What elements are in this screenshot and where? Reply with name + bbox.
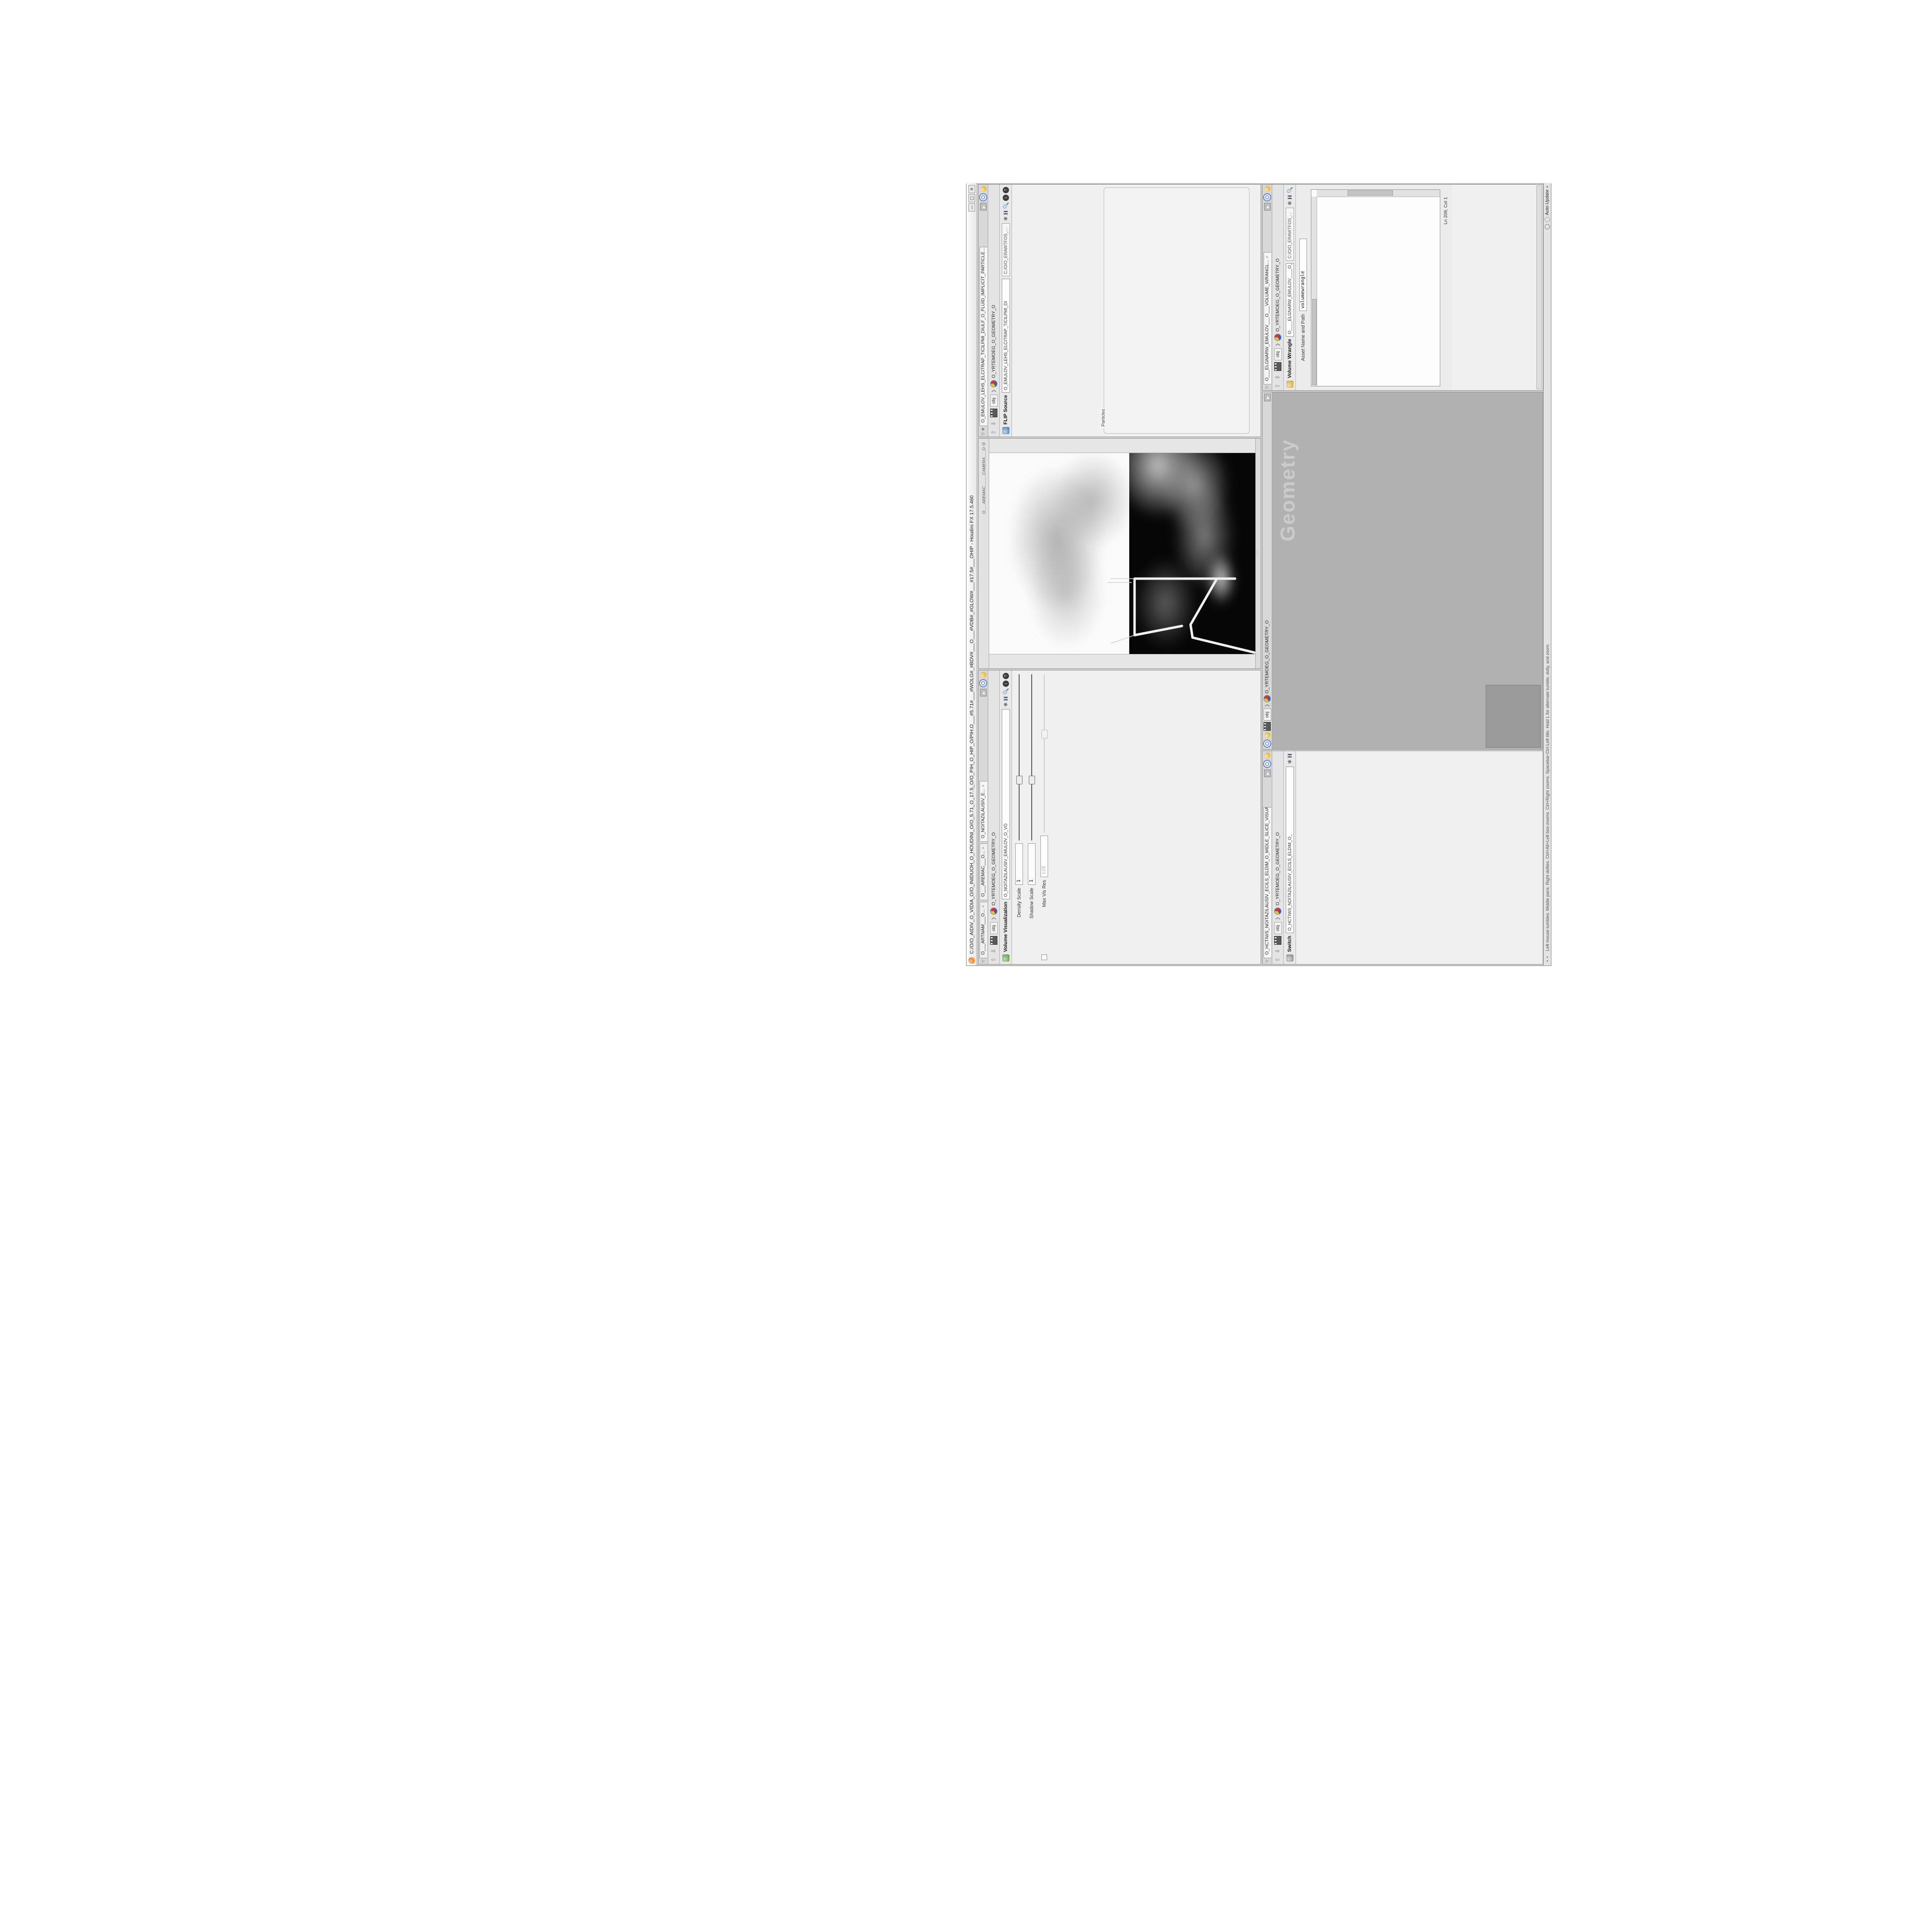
breadcrumb-root[interactable]: obj bbox=[990, 922, 998, 934]
node-name-field[interactable]: O_HCTIWS_NOITAZILAUSIV_ECILS_ELDIM_O_ bbox=[1286, 767, 1294, 934]
breadcrumb-sep-icon: ❯ bbox=[991, 917, 996, 921]
node-name-field[interactable]: O____ELGNARW_EMULOV____O____VOI bbox=[1286, 263, 1294, 336]
param-value-field[interactable]: 1 bbox=[1028, 843, 1036, 885]
breadcrumb-root[interactable]: obj bbox=[1274, 922, 1282, 934]
viewport-right-toolbar bbox=[989, 439, 1256, 453]
flip-source-pane: ▽ ✥ O_EMULOV_LEHS_ELCITRAP_TICILPMI_DIUL… bbox=[978, 184, 1261, 437]
maximize-button[interactable]: ▢ bbox=[968, 194, 975, 202]
nav-up-icon[interactable]: ⇧ bbox=[990, 428, 997, 435]
volume-wrangle-pane: ▽ O___ELGNARW_EMULOV___O___VOLUME_WRANGL… bbox=[1262, 184, 1543, 391]
cursor-position-status: Ln 209, Col 1 bbox=[1443, 197, 1449, 225]
volume-visualization-pane: ▽ O___ARTNAM___O...✕ O___AREMAC___O...✕ … bbox=[978, 670, 1261, 965]
houdini-h-icon: H bbox=[1286, 195, 1293, 199]
particles-group-label: Particles bbox=[1101, 407, 1106, 428]
volume-visualization-icon bbox=[1002, 954, 1009, 962]
info-icon[interactable]: i bbox=[1003, 681, 1009, 687]
param-label: Shadow Scale bbox=[1029, 888, 1035, 960]
colorwheel-icon bbox=[1274, 908, 1281, 915]
volvis-parameters: Density Scale1Shadow Scale1Max Vis Res12… bbox=[1013, 670, 1261, 964]
colorwheel-icon bbox=[990, 908, 997, 915]
gear-icon[interactable]: ✱ bbox=[1003, 702, 1009, 707]
gear-icon[interactable]: ✱ bbox=[1003, 216, 1009, 221]
flip-parameters: Particles bbox=[1013, 185, 1261, 437]
nav-down-icon[interactable]: ⬇ bbox=[990, 947, 997, 953]
houdini-desktop: C:/O/O_AIDIV_O_VIDIA_O/O_INIDUOH_O_HOUDI… bbox=[966, 184, 1551, 966]
window-titlebar: C:/O/O_AIDIV_O_VIDIA_O/O_INIDUOH_O_HOUDI… bbox=[966, 183, 977, 966]
node-type-label: Switch bbox=[1287, 936, 1293, 952]
nav-down-icon[interactable]: ⬇ bbox=[990, 419, 997, 426]
switch-tabstrip: ▽ O_HCTIWS_NOITAZILAUSIV_ECILS_ELDIM_O_M… bbox=[1263, 751, 1272, 964]
breadcrumb-root[interactable]: obj bbox=[1274, 348, 1282, 360]
nav-down-icon[interactable]: ⬇ bbox=[1274, 373, 1281, 380]
pane-split-icon[interactable]: ✥ bbox=[981, 427, 985, 431]
minimize-button[interactable]: — bbox=[968, 203, 975, 212]
param-label: Density Scale bbox=[1017, 888, 1022, 960]
node-type-label: Volume Wrangle bbox=[1287, 339, 1293, 378]
help-icon[interactable]: ? bbox=[1003, 673, 1009, 679]
status-bar: ▲▲ Left mouse tumbles. Middle pans. Righ… bbox=[1543, 183, 1551, 966]
switch-breadcrumb: ⇧ ⬇ obj ❯ O_YRTEMOEG_O_GEOMETRY_O bbox=[1272, 751, 1284, 964]
info-icon[interactable]: i bbox=[1003, 195, 1009, 201]
pane-menu-icon[interactable]: ▽ bbox=[1265, 386, 1269, 389]
pane-pin-icon[interactable] bbox=[980, 672, 986, 678]
tab-visualization[interactable]: O_NOITAZILAUSIV_E...✕ bbox=[980, 781, 987, 842]
breadcrumb-node[interactable]: O_YRTEMOEG_O_GEOMETRY_O bbox=[991, 305, 996, 378]
pane-link-icon[interactable] bbox=[979, 193, 987, 201]
volume-wrangle-icon bbox=[1286, 381, 1293, 388]
switch-icon bbox=[1286, 954, 1293, 962]
wrangle-breadcrumb: ⇧ ⬇ obj ❯ O_YRTEMOEG_O_GEOMETRY_O bbox=[1272, 185, 1284, 390]
pane-link-icon[interactable] bbox=[1263, 739, 1271, 748]
scene-viewport-pane: O___AREMAC_____CAMERA___O @ bbox=[978, 438, 1261, 669]
pane-menu-icon[interactable]: ▽ bbox=[1265, 960, 1269, 963]
search-icon[interactable]: 🔍 bbox=[1287, 187, 1293, 194]
asset-path-field[interactable]: C:/O/O_ERAWTFOS_... bbox=[1286, 208, 1294, 261]
wrangle-typerow: Volume Wrangle O____ELGNARW_EMULOV____O_… bbox=[1284, 185, 1296, 390]
pane-pin-icon[interactable] bbox=[1264, 753, 1270, 758]
param-label: Asset Name and Path bbox=[1301, 314, 1306, 386]
pane-hscrollbar[interactable] bbox=[1536, 185, 1542, 389]
network-watermark: Geometry bbox=[1276, 439, 1299, 541]
kaleidoscope-stage: C:/O/O_AIDIV_O_VIDIA_O/O_INIDUOH_O_HOUDI… bbox=[0, 0, 1932, 1932]
colorwheel-icon bbox=[990, 380, 997, 387]
refresh-icon[interactable] bbox=[1545, 224, 1550, 229]
pane-play-button[interactable]: ▶ bbox=[1264, 769, 1271, 777]
network-editor-pane: obj ❯ O_YRTEMOEG_O_GEOMETRY_O ▶ Geometry bbox=[1262, 392, 1543, 750]
node-name-field[interactable]: O_EMULOV_LEHS_ELCITRAP_TICILPMI_DI bbox=[1002, 279, 1010, 393]
resize-grip-icon: ▲▲ bbox=[1546, 955, 1549, 963]
network-breadcrumb-root[interactable]: obj bbox=[1264, 709, 1271, 721]
param-slider[interactable] bbox=[1044, 674, 1045, 833]
viewport-canvas[interactable] bbox=[989, 453, 1256, 654]
nav-up-icon[interactable]: ⇧ bbox=[1274, 955, 1281, 962]
flip-typerow: FLIP Source O_EMULOV_LEHS_ELCITRAP_TICIL… bbox=[1000, 185, 1012, 437]
network-breadcrumb-node[interactable]: O_YRTEMOEG_O_GEOMETRY_O bbox=[1264, 620, 1270, 694]
camera-lock-icon[interactable]: @ bbox=[981, 442, 986, 446]
colorwheel-icon bbox=[1274, 334, 1281, 341]
pane-play-button[interactable]: ▶ bbox=[980, 689, 987, 696]
param-slider[interactable] bbox=[1031, 674, 1032, 840]
breadcrumb-root[interactable]: obj bbox=[990, 395, 998, 407]
viewport-bottom-strip[interactable]: ⁙⁙⁙ bbox=[1255, 439, 1261, 668]
asset-name-field[interactable]: volumewrangle bbox=[1299, 239, 1307, 311]
fluid-tank-wireframe bbox=[989, 453, 1256, 654]
close-button[interactable]: ✕ bbox=[968, 185, 975, 193]
network-minimap[interactable] bbox=[1486, 685, 1541, 748]
volvis-breadcrumb: ⇧ ⬇ obj ❯ O_YRTEMOEG_O_GEOMETRY_O bbox=[988, 670, 1000, 964]
tab-flip-source[interactable]: O_EMULOV_LEHS_ELCITRAP_TICILPMI_DIULF_O_… bbox=[980, 247, 987, 426]
pane-pin-icon[interactable] bbox=[980, 186, 986, 192]
pane-play-button[interactable]: ▶ bbox=[980, 203, 987, 211]
vex-code-editor[interactable] bbox=[1311, 189, 1440, 386]
houdini-h-icon: H bbox=[1286, 753, 1293, 758]
breadcrumb-node[interactable]: O_YRTEMOEG_O_GEOMETRY_O bbox=[1275, 832, 1280, 906]
param-value-field[interactable]: 1 bbox=[1015, 843, 1023, 885]
clapperboard-icon bbox=[1274, 936, 1281, 945]
mouse-hint-text: Left mouse tumbles. Middle pans. Right d… bbox=[1545, 233, 1550, 951]
enable-checkbox[interactable] bbox=[1041, 954, 1047, 960]
vex-code-lines bbox=[1319, 199, 1438, 383]
houdini-logo-icon bbox=[968, 957, 975, 964]
wrangle-parameters bbox=[1452, 185, 1543, 390]
particles-groupbox: Particles bbox=[1104, 187, 1250, 434]
flip-tabstrip: ▽ ✥ O_EMULOV_LEHS_ELCITRAP_TICILPMI_DIUL… bbox=[979, 185, 988, 437]
node-name-field[interactable]: O_NOITAZILAUSIV_EMULOV_O_VO bbox=[1002, 709, 1010, 899]
pane-link-icon[interactable] bbox=[979, 679, 987, 687]
switch-typerow: Switch O_HCTIWS_NOITAZILAUSIV_ECILS_ELDI… bbox=[1284, 751, 1296, 964]
houdini-h-icon: H bbox=[1002, 696, 1009, 701]
nav-up-icon[interactable]: ⇧ bbox=[990, 955, 997, 962]
network-canvas[interactable]: Geometry bbox=[1272, 392, 1543, 749]
param-row: Max Vis Res128 bbox=[1038, 670, 1051, 964]
code-hscrollbar[interactable] bbox=[1311, 197, 1317, 386]
volvis-typerow: Volume Visualization O_NOITAZILAUSIV_EMU… bbox=[1000, 670, 1012, 964]
tab-switch[interactable]: O_HCTIWS_NOITAZILAUSIV_ECILS_ELDIM_O_MID… bbox=[1264, 807, 1271, 958]
volvis-tabstrip: ▽ O___ARTNAM___O...✕ O___AREMAC___O...✕ … bbox=[979, 670, 988, 964]
pane-link-icon[interactable] bbox=[1263, 193, 1271, 201]
clapperboard-icon bbox=[990, 409, 997, 417]
colorwheel-icon bbox=[1264, 695, 1271, 702]
tab-volume-wrangle[interactable]: O___ELGNARW_EMULOV___O___VOLUME_WRANGL..… bbox=[1264, 252, 1271, 384]
auto-update-dropdown[interactable]: Auto Update bbox=[1545, 190, 1550, 215]
code-vscrollbar[interactable] bbox=[1317, 190, 1440, 197]
houdini-h-icon: H bbox=[1002, 211, 1009, 215]
breadcrumb-sep-icon: ❯ bbox=[991, 389, 996, 393]
pane-menu-icon[interactable]: ▽ bbox=[981, 960, 985, 963]
pane-play-button[interactable]: ▶ bbox=[1264, 203, 1271, 211]
camera-menu[interactable]: O___AREMAC_____CAMERA___O bbox=[981, 447, 986, 514]
pane-pin-icon[interactable] bbox=[1264, 732, 1270, 738]
gear-icon[interactable]: ✱ bbox=[1287, 201, 1293, 205]
nav-up-icon[interactable]: ⇧ bbox=[1274, 382, 1281, 388]
viewport-topbar: O___AREMAC_____CAMERA___O @ bbox=[979, 439, 989, 668]
gear-icon[interactable]: ✱ bbox=[1287, 759, 1293, 764]
breadcrumb-sep-icon: ❯ bbox=[1275, 343, 1280, 347]
clapperboard-icon bbox=[990, 936, 997, 945]
tab-camera[interactable]: O___AREMAC___O...✕ bbox=[980, 843, 987, 900]
nav-down-icon[interactable]: ⬇ bbox=[1274, 947, 1281, 953]
switch-parameters bbox=[1297, 751, 1543, 964]
viewport-left-toolbar bbox=[989, 654, 1256, 668]
search-icon[interactable]: 🔍 bbox=[1003, 202, 1009, 209]
asset-path-field[interactable]: C:/O/O_ERAWTFOS_... bbox=[1002, 223, 1010, 276]
search-icon[interactable]: 🔍 bbox=[1003, 688, 1009, 695]
pane-menu-icon[interactable]: ▽ bbox=[981, 432, 985, 435]
param-label: Max Vis Res bbox=[1042, 880, 1047, 952]
window-title: C:/O/O_AIDIV_O_VIDIA_O/O_INIDUOH_O_HOUDI… bbox=[969, 214, 975, 954]
pane-play-button[interactable]: ▶ bbox=[1264, 394, 1271, 401]
breadcrumb-node[interactable]: O_YRTEMOEG_O_GEOMETRY_O bbox=[1275, 258, 1280, 332]
clapperboard-icon bbox=[1264, 722, 1271, 731]
help-icon[interactable]: ? bbox=[1003, 187, 1009, 193]
param-row: Density Scale1 bbox=[1013, 670, 1025, 964]
breadcrumb-node[interactable]: O_YRTEMOEG_O_GEOMETRY_O bbox=[991, 832, 996, 906]
breadcrumb-sep-icon: ❯ bbox=[1264, 704, 1270, 708]
switch-pane: ▽ O_HCTIWS_NOITAZILAUSIV_ECILS_ELDIM_O_M… bbox=[1262, 751, 1543, 965]
wrangle-tabstrip: ▽ O___ELGNARW_EMULOV___O___VOLUME_WRANGL… bbox=[1263, 185, 1272, 390]
pane-link-icon[interactable] bbox=[1263, 760, 1271, 768]
param-row: Shadow Scale1 bbox=[1025, 670, 1038, 964]
param-slider[interactable] bbox=[1019, 674, 1020, 840]
asset-name-row: Asset Name and Path volumewrangle bbox=[1297, 185, 1309, 390]
node-type-label: FLIP Source bbox=[1003, 395, 1009, 425]
node-type-label: Volume Visualization bbox=[1003, 902, 1009, 952]
network-tabstrip: obj ❯ O_YRTEMOEG_O_GEOMETRY_O ▶ bbox=[1263, 392, 1272, 749]
houdini-window: C:/O/O_AIDIV_O_VIDIA_O/O_INIDUOH_O_HOUDI… bbox=[966, 184, 1551, 966]
flip-source-icon bbox=[1002, 427, 1009, 434]
tab-mantra[interactable]: O___ARTNAM___O...✕ bbox=[980, 902, 987, 958]
clapperboard-icon bbox=[1274, 362, 1281, 371]
flip-breadcrumb: ⇧ ⬇ obj ❯ O_YRTEMOEG_O_GEOMETRY_O bbox=[988, 185, 1000, 437]
pane-pin-icon[interactable] bbox=[1264, 186, 1270, 192]
param-row bbox=[1051, 670, 1063, 964]
param-value-field[interactable]: 128 bbox=[1040, 836, 1048, 877]
breadcrumb-sep-icon: ❯ bbox=[1275, 917, 1280, 921]
cook-mode-icon[interactable] bbox=[1545, 217, 1550, 222]
